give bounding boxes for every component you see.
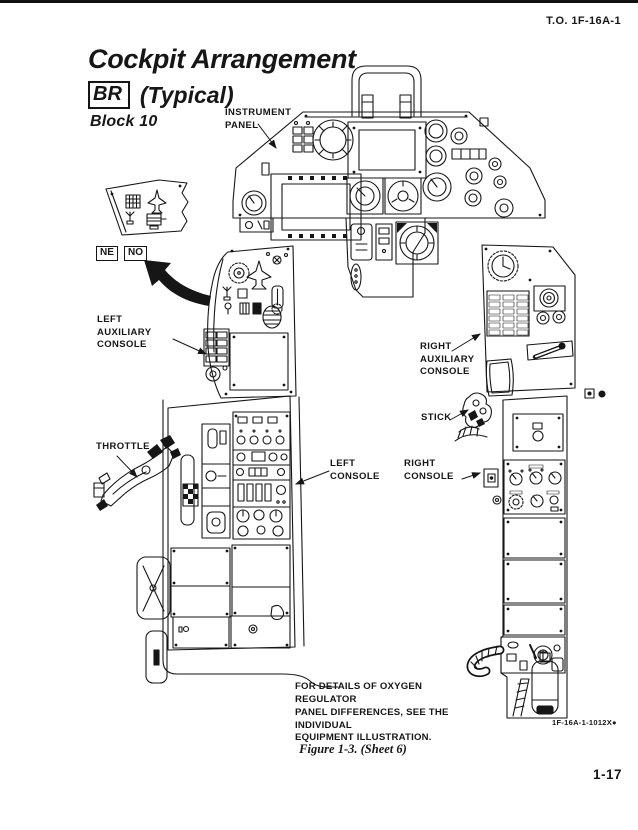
inset-panel-drawing (106, 180, 188, 235)
right-aux-console-drawing (482, 245, 575, 396)
stick-drawing (455, 393, 491, 441)
manual-page: T.O. 1F-16A-1 Cockpit Arrangement BR (Ty… (0, 0, 638, 830)
callout-throttle: THROTTLE (96, 441, 150, 454)
page-title: Cockpit Arrangement (88, 44, 356, 75)
effectivity-badge-ne: NE (96, 246, 118, 261)
left-aux-console-drawing (204, 246, 296, 398)
callout-left-aux-console: LEFT AUXILIARY CONSOLE (97, 314, 151, 352)
figure-reference-code: 1F-16A-1-1012X● (552, 718, 617, 727)
effectivity-badge-no: NO (124, 246, 147, 261)
effectivity-marks (585, 389, 605, 398)
effectivity-badge-br: BR (88, 81, 130, 109)
block-label: Block 10 (90, 113, 157, 131)
inset-arrow (144, 260, 211, 306)
center-pedestal-drawing (346, 218, 438, 297)
figure-caption: Figure 1-3. (Sheet 6) (248, 742, 458, 757)
oxygen-regulator-panel (501, 637, 565, 673)
callout-right-aux-console: RIGHT AUXILIARY CONSOLE (420, 341, 474, 379)
oxygen-hose (471, 646, 500, 673)
hud-frame (352, 66, 421, 118)
callout-left-console: LEFT CONSOLE (330, 458, 380, 483)
page-number: 1-17 (593, 767, 622, 782)
right-console-drawing (471, 396, 567, 718)
oxygen-note: FOR DETAILS OF OXYGEN REGULATOR PANEL DI… (295, 681, 485, 745)
callout-stick: STICK (421, 412, 452, 425)
doc-number: T.O. 1F-16A-1 (546, 15, 621, 27)
title-row: BR (Typical) (88, 81, 234, 109)
callout-right-console: RIGHT CONSOLE (404, 458, 454, 483)
callout-instrument-panel: INSTRUMENT PANEL (225, 107, 291, 132)
title-qualifier: (Typical) (140, 82, 234, 109)
